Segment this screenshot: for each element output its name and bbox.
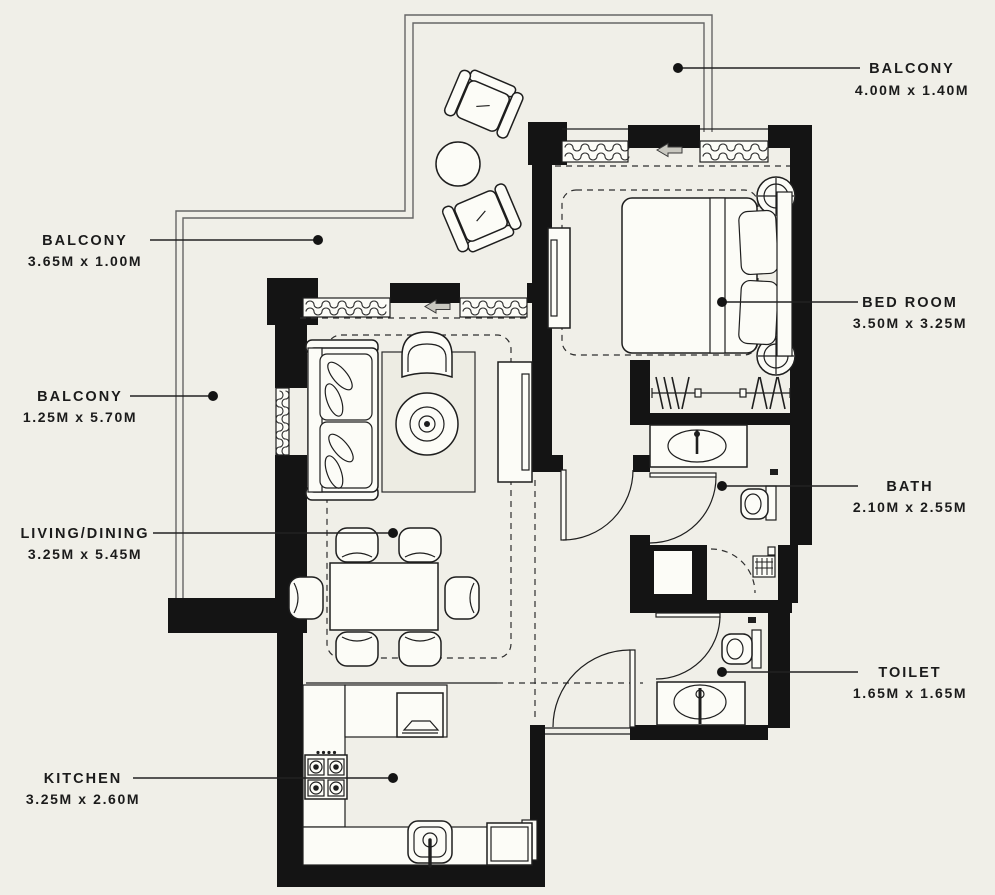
room-dims: 2.10M x 2.55M — [853, 499, 967, 515]
kitchen-fixtures — [303, 685, 532, 866]
labels: BALCONY 4.00M x 1.40M BALCONY 3.65M x 1.… — [20, 61, 969, 807]
dining-table — [330, 563, 438, 630]
toilet-basin — [657, 682, 745, 725]
toilet-door — [656, 613, 720, 679]
bath-door — [650, 473, 716, 543]
bed — [622, 192, 792, 356]
room-dims: 1.25M x 5.70M — [23, 409, 137, 425]
room-label: BED ROOM — [862, 295, 958, 311]
shower-glass — [768, 547, 775, 555]
kitchen-door — [553, 650, 635, 727]
coffee-table — [396, 393, 458, 455]
dining-set — [289, 528, 479, 666]
room-label: BALCONY — [37, 389, 123, 405]
room-dims: 4.00M x 1.40M — [855, 82, 969, 98]
wardrobe — [652, 377, 790, 409]
room-label: LIVING/DINING — [20, 526, 149, 542]
balcony-chair-2 — [441, 182, 524, 256]
room-dims: 3.50M x 3.25M — [853, 315, 967, 331]
living-furniture — [306, 332, 532, 500]
label-balcony-left: BALCONY 1.25M x 5.70M — [23, 389, 218, 425]
room-label: TOILET — [878, 665, 941, 681]
toilet-fixtures — [657, 617, 761, 725]
bedroom-tv-unit — [548, 228, 570, 328]
room-dims: 3.25M x 5.45M — [28, 546, 142, 562]
armchair — [402, 332, 452, 377]
sofa — [306, 340, 378, 500]
room-label: BALCONY — [42, 233, 128, 249]
stove — [305, 751, 347, 799]
room-dims: 3.25M x 2.60M — [26, 791, 140, 807]
room-dims: 3.65M x 1.00M — [28, 253, 142, 269]
room-label: BALCONY — [869, 61, 955, 77]
bath-vanity — [650, 425, 747, 467]
dishwasher — [487, 823, 532, 865]
entry-door — [561, 470, 633, 540]
floor-plan-drawing: BALCONY 4.00M x 1.40M BALCONY 3.65M x 1.… — [0, 0, 995, 895]
shower-drain — [753, 556, 775, 577]
toilet-wc — [722, 617, 761, 668]
floor-plan-page: BALCONY 4.00M x 1.40M BALCONY 3.65M x 1.… — [0, 0, 995, 895]
fridge — [397, 693, 443, 737]
utility-cell — [753, 547, 775, 577]
kitchen-sink — [408, 821, 452, 866]
label-toilet: TOILET 1.65M x 1.65M — [717, 665, 967, 701]
bath-wc — [741, 469, 778, 520]
room-dims: 1.65M x 1.65M — [853, 685, 967, 701]
balcony-chair-1 — [443, 65, 526, 139]
balcony-furniture — [436, 65, 526, 257]
shower-door-swing — [711, 549, 755, 593]
room-label: KITCHEN — [44, 771, 122, 787]
balcony-table — [436, 142, 480, 186]
room-label: BATH — [886, 479, 933, 495]
label-balcony-top: BALCONY 4.00M x 1.40M — [673, 61, 969, 98]
living-tv-unit — [498, 362, 532, 482]
